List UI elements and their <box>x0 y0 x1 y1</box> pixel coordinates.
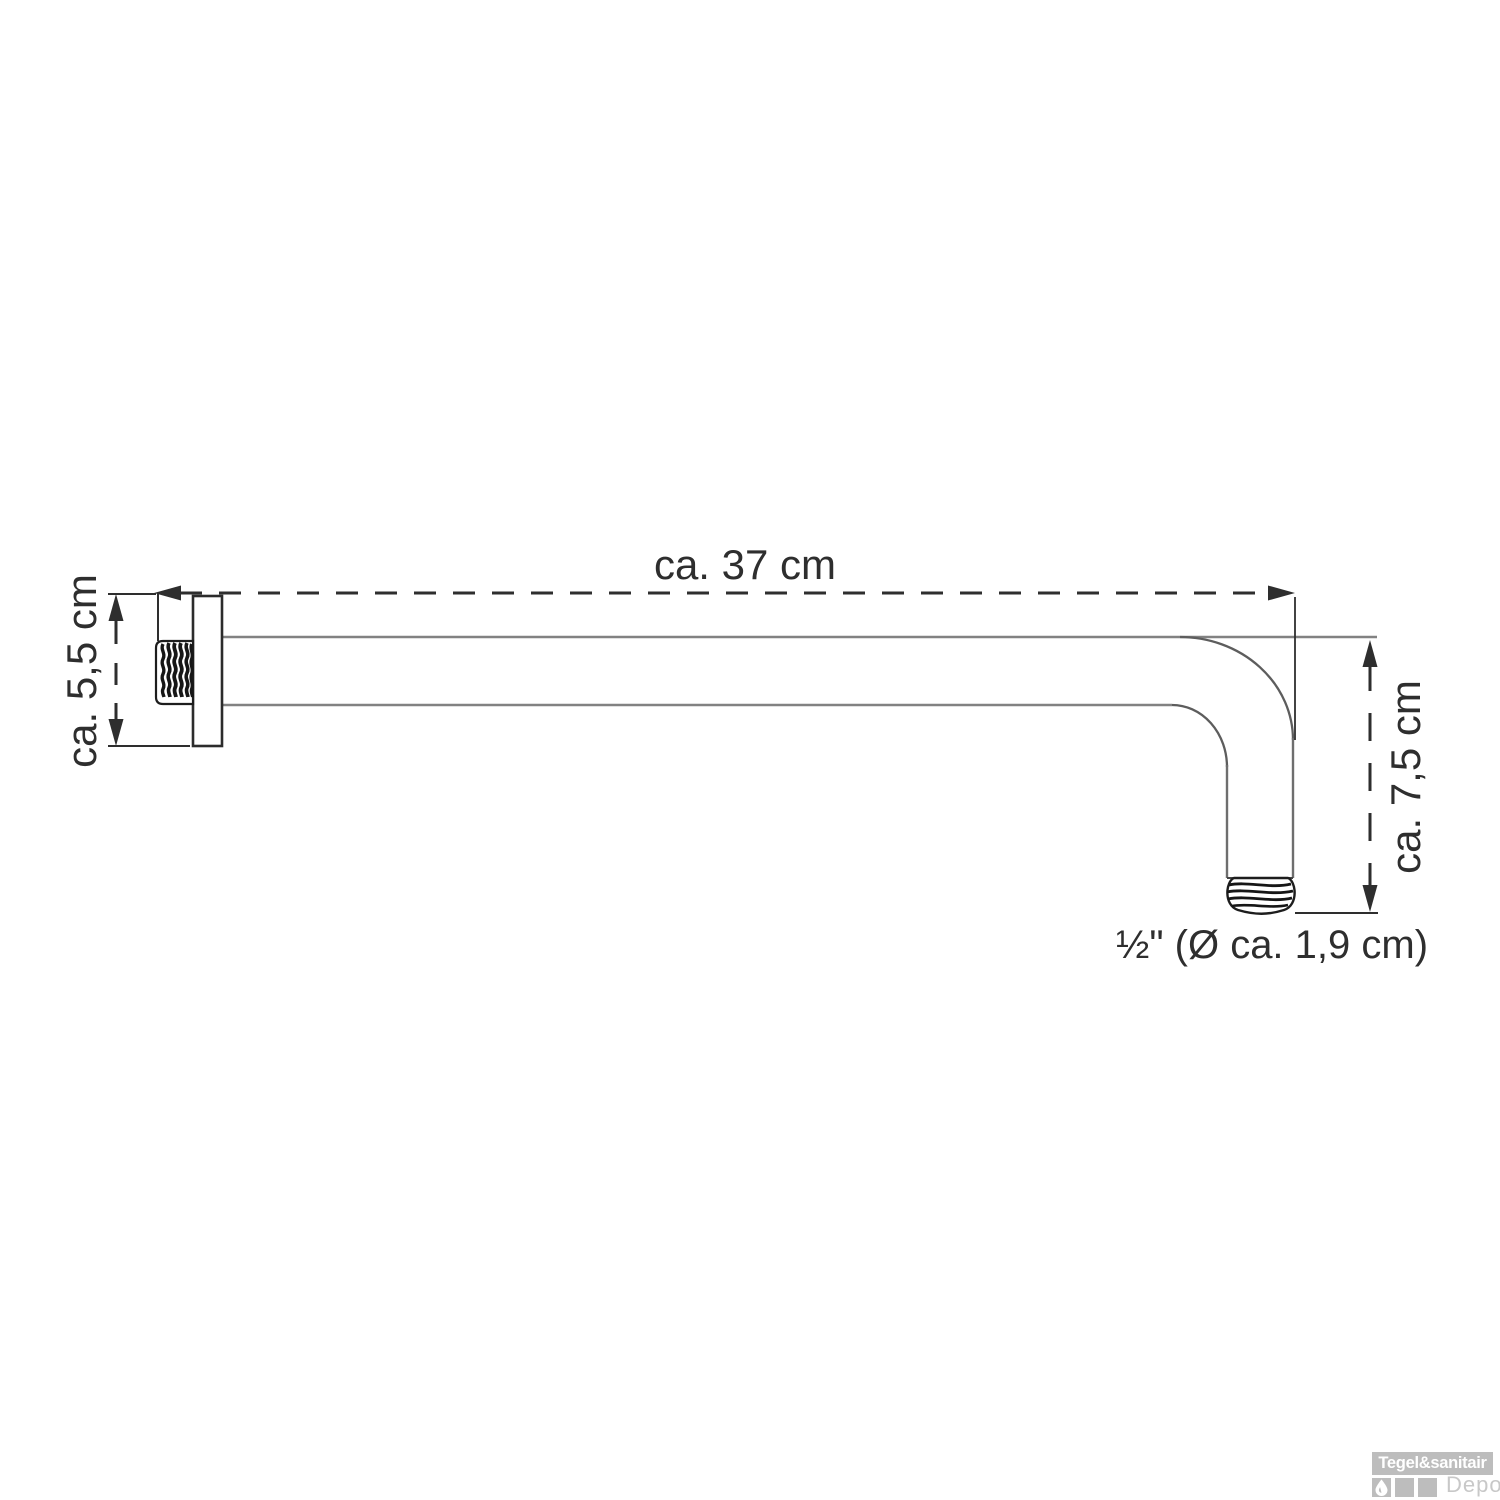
shower-arm-dimension-drawing: ca. 37 cm ca. 5,5 cm ca. 7,5 cm ½" (Ø ca… <box>0 0 1500 1500</box>
watermark-brand-text: Tegel&sanitair <box>1378 1455 1486 1472</box>
watermark-square <box>1418 1478 1437 1497</box>
watermark-square-drop <box>1372 1478 1391 1497</box>
dimension-drop-height-label: ca. 7,5 cm <box>1382 680 1429 874</box>
shower-arm-pipe <box>222 637 1377 878</box>
watermark-subbrand-text: Depot <box>1446 1473 1500 1497</box>
outlet-thread <box>1227 878 1295 914</box>
arrow-down-icon <box>1363 885 1378 912</box>
watermark-square <box>1395 1478 1414 1497</box>
dimension-flange-height-label: ca. 5,5 cm <box>58 574 105 768</box>
arrow-down-icon <box>109 719 124 746</box>
arrow-up-icon <box>109 594 124 621</box>
dimension-length: ca. 37 cm <box>154 541 1295 740</box>
diagram-canvas: ca. 37 cm ca. 5,5 cm ca. 7,5 cm ½" (Ø ca… <box>0 0 1500 1500</box>
wall-thread <box>156 641 193 704</box>
arrow-right-icon <box>1268 586 1295 601</box>
dimension-drop-height: ca. 7,5 cm <box>1295 640 1429 913</box>
thread-spec-label: ½" (Ø ca. 1,9 cm) <box>1116 923 1428 967</box>
water-drop-icon <box>1374 1479 1389 1496</box>
dimension-length-label: ca. 37 cm <box>654 541 836 588</box>
wall-flange <box>193 596 222 746</box>
arrow-up-icon <box>1363 640 1378 667</box>
